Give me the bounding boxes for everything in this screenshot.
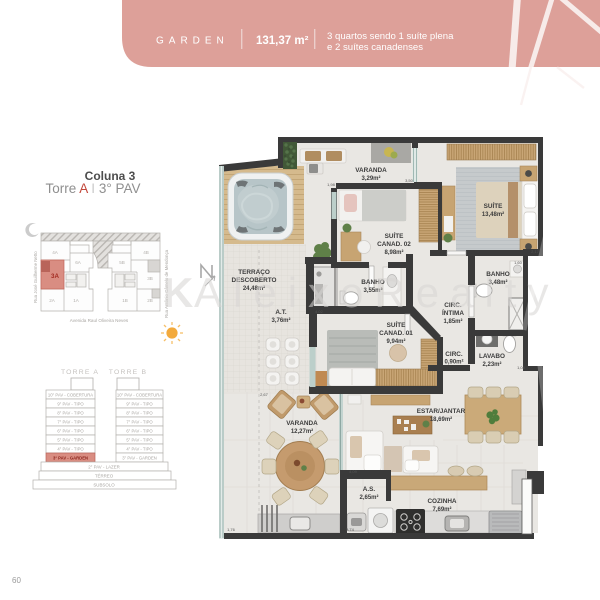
svg-text:VARANDA: VARANDA xyxy=(286,420,318,427)
svg-text:9,94m²: 9,94m² xyxy=(386,338,405,345)
svg-text:1,85m²: 1,85m² xyxy=(443,318,462,325)
svg-text:SUÍTE: SUÍTE xyxy=(484,201,504,210)
svg-text:ESTAR/JANTAR: ESTAR/JANTAR xyxy=(417,408,466,415)
svg-text:8° PAV - TIPO: 8° PAV - TIPO xyxy=(126,411,153,416)
svg-text:1,98: 1,98 xyxy=(327,182,336,187)
svg-text:9° PAV - TIPO: 9° PAV - TIPO xyxy=(126,402,153,407)
svg-text:2,23m²: 2,23m² xyxy=(482,361,501,368)
svg-text:AleixoRealty: AleixoRealty xyxy=(194,269,559,316)
svg-text:5,74: 5,74 xyxy=(346,527,355,532)
svg-text:COZINHA: COZINHA xyxy=(427,498,456,505)
svg-text:6° PAV - TIPO: 6° PAV - TIPO xyxy=(126,429,153,434)
svg-text:A.S.: A.S. xyxy=(363,486,376,493)
svg-text:3B: 3B xyxy=(147,276,153,281)
svg-text:2,65m²: 2,65m² xyxy=(359,494,378,501)
svg-text:1,76: 1,76 xyxy=(227,527,236,532)
svg-text:2A: 2A xyxy=(49,298,56,303)
svg-text:3° PAV - GARDEN: 3° PAV - GARDEN xyxy=(53,456,88,461)
svg-text:2° PAV - LAZER: 2° PAV - LAZER xyxy=(88,465,120,470)
svg-text:8° PAV - TIPO: 8° PAV - TIPO xyxy=(57,411,84,416)
svg-text:4° PAV - TIPO: 4° PAV - TIPO xyxy=(126,447,153,452)
svg-text:K: K xyxy=(163,269,193,316)
svg-text:1,08: 1,08 xyxy=(517,365,526,370)
svg-text:5° PAV - TIPO: 5° PAV - TIPO xyxy=(57,438,84,443)
svg-text:LAVABO: LAVABO xyxy=(479,353,505,360)
svg-text:CANAD. 01: CANAD. 01 xyxy=(379,330,413,337)
svg-text:12,27m²: 12,27m² xyxy=(291,428,313,435)
svg-text:4A: 4A xyxy=(52,250,59,255)
svg-text:CIRC.: CIRC. xyxy=(445,351,463,358)
svg-text:13,48m²: 13,48m² xyxy=(482,211,504,218)
svg-text:10° PAV - COBERTURA: 10° PAV - COBERTURA xyxy=(48,393,93,398)
svg-text:e 2 suítes canadenses: e 2 suítes canadenses xyxy=(327,42,423,53)
svg-text:GARDEN: GARDEN xyxy=(156,36,229,47)
svg-text:7° PAV - TIPO: 7° PAV - TIPO xyxy=(57,420,84,425)
svg-text:3A: 3A xyxy=(51,273,59,280)
svg-text:Torre A I 3° PAV: Torre A I 3° PAV xyxy=(46,181,141,196)
svg-text:0,90m²: 0,90m² xyxy=(444,359,463,366)
svg-text:6° PAV - TIPO: 6° PAV - TIPO xyxy=(57,429,84,434)
svg-text:5B: 5B xyxy=(119,260,125,265)
svg-text:3,76m²: 3,76m² xyxy=(271,317,290,324)
svg-text:60: 60 xyxy=(12,576,21,585)
svg-text:8,98m²: 8,98m² xyxy=(384,249,403,256)
svg-text:SUÍTE: SUÍTE xyxy=(387,320,407,329)
svg-text:Avenida Raul Oliveira Neves: Avenida Raul Oliveira Neves xyxy=(70,318,129,323)
svg-text:7° PAV - TIPO: 7° PAV - TIPO xyxy=(126,420,153,425)
svg-text:TORRE A: TORRE A xyxy=(61,369,99,376)
svg-text:4B: 4B xyxy=(143,250,149,255)
svg-text:1A: 1A xyxy=(73,298,80,303)
svg-text:CANAD. 02: CANAD. 02 xyxy=(377,241,411,248)
svg-text:6A: 6A xyxy=(75,260,82,265)
svg-text:131,37 m²: 131,37 m² xyxy=(256,35,309,47)
svg-text:SUÍTE: SUÍTE xyxy=(385,231,405,240)
svg-text:18,69m²: 18,69m² xyxy=(430,416,452,423)
svg-text:4,09: 4,09 xyxy=(349,469,358,474)
svg-text:Rua José Guilherme Netto: Rua José Guilherme Netto xyxy=(33,251,38,303)
svg-text:3,50: 3,50 xyxy=(405,178,414,183)
svg-text:TÉRREO: TÉRREO xyxy=(95,474,114,479)
svg-text:3,29m²: 3,29m² xyxy=(361,175,380,182)
svg-text:5° PAV - TIPO: 5° PAV - TIPO xyxy=(126,438,153,443)
svg-text:1,60: 1,60 xyxy=(514,260,523,265)
svg-text:4° PAV - TIPO: 4° PAV - TIPO xyxy=(57,447,84,452)
svg-text:2,67: 2,67 xyxy=(260,392,269,397)
svg-text:10° PAV - COBERTURA: 10° PAV - COBERTURA xyxy=(117,393,162,398)
svg-text:1B: 1B xyxy=(122,298,128,303)
svg-text:3 quartos sendo 1 suíte plena: 3 quartos sendo 1 suíte plena xyxy=(327,31,454,42)
svg-text:9° PAV - TIPO: 9° PAV - TIPO xyxy=(57,402,84,407)
svg-text:TORRE B: TORRE B xyxy=(109,369,148,376)
svg-text:2,17: 2,17 xyxy=(531,249,540,254)
svg-text:2B: 2B xyxy=(147,298,153,303)
svg-text:VARANDA: VARANDA xyxy=(355,167,387,174)
svg-text:SUBSOLO: SUBSOLO xyxy=(93,483,115,488)
svg-text:3° PAV - GARDEN: 3° PAV - GARDEN xyxy=(122,456,157,461)
svg-text:7,69m²: 7,69m² xyxy=(432,506,451,513)
